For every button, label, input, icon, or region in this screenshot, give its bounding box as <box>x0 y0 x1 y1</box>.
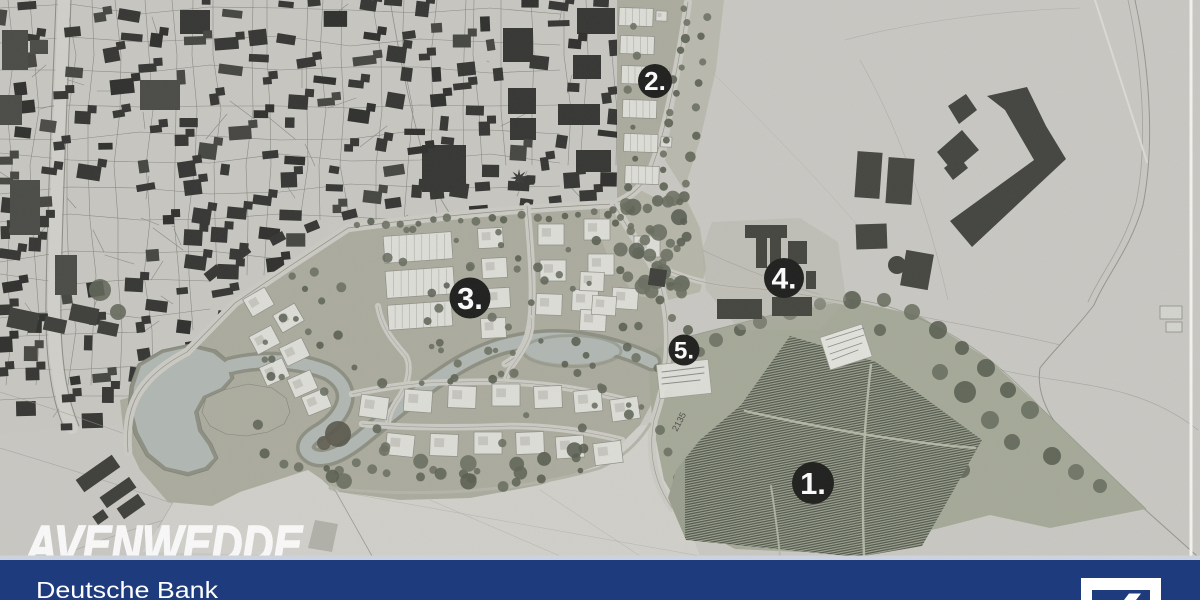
svg-text:Deutsche Bank: Deutsche Bank <box>36 577 219 600</box>
